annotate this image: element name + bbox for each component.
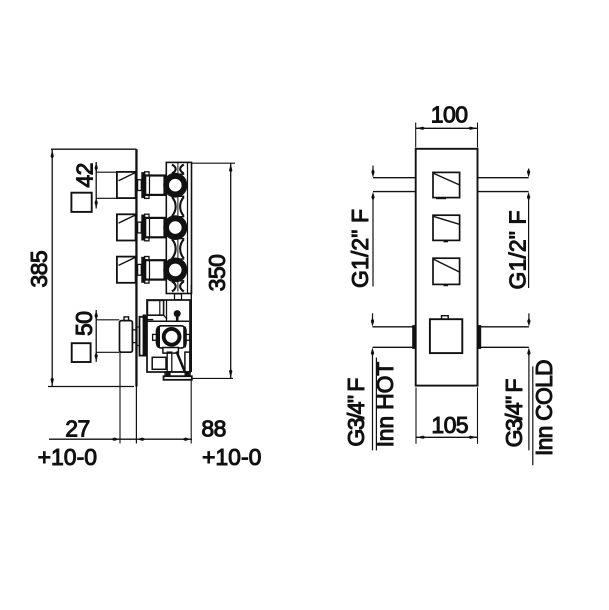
svg-text:42: 42 (72, 163, 98, 187)
svg-text:88: 88 (201, 415, 225, 441)
svg-text:Inn COLD: Inn COLD (531, 360, 557, 456)
svg-text:G1/2" F: G1/2" F (505, 210, 531, 289)
svg-text:50: 50 (71, 312, 97, 336)
svg-text:100: 100 (431, 102, 468, 128)
svg-text:27: 27 (65, 415, 89, 441)
svg-text:350: 350 (204, 255, 230, 292)
svg-text:G3/4" F: G3/4" F (343, 378, 369, 447)
svg-text:G1/2" F: G1/2" F (347, 209, 373, 288)
svg-text:385: 385 (26, 251, 52, 288)
svg-text:105: 105 (431, 412, 468, 438)
svg-text:G3/4" F: G3/4" F (501, 379, 527, 448)
svg-text:+10-0: +10-0 (202, 444, 261, 470)
svg-text:Inn HOT: Inn HOT (372, 362, 398, 448)
svg-text:+10-0: +10-0 (38, 444, 97, 470)
